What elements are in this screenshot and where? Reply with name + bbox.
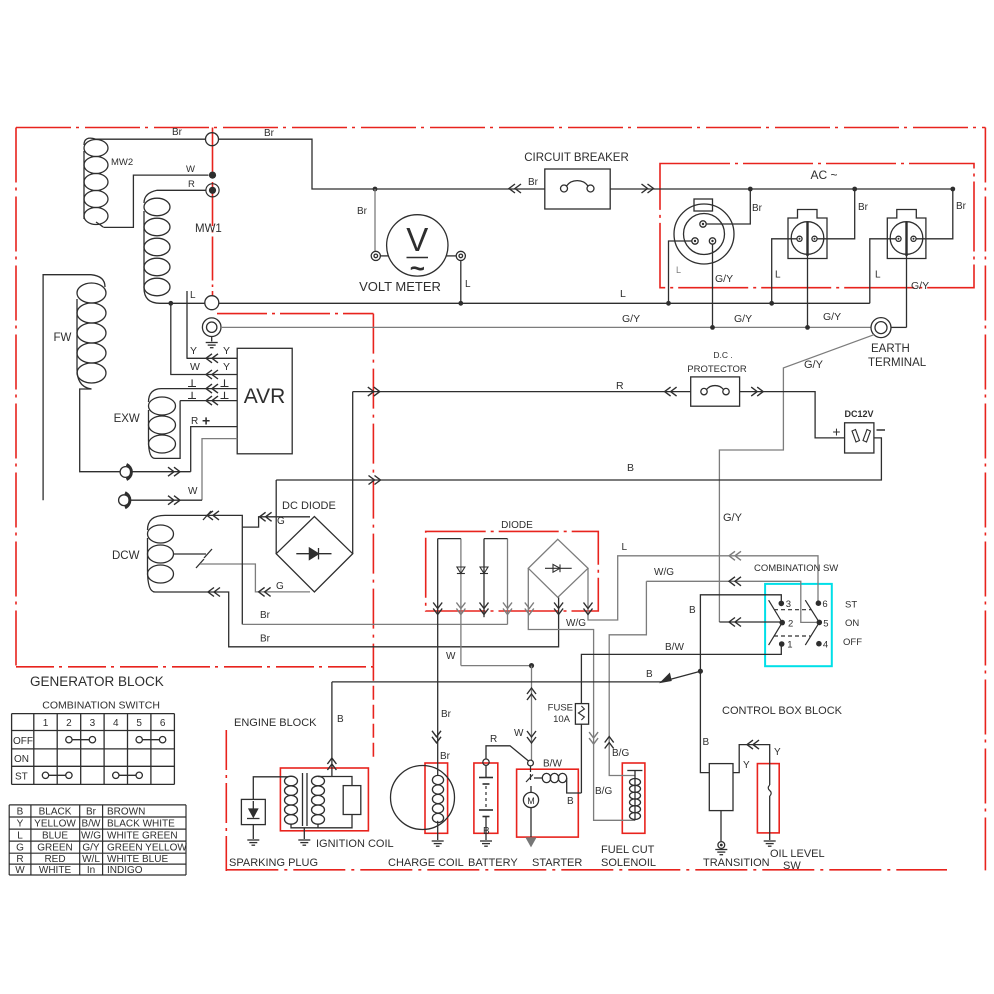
svg-text:DC DIODE: DC DIODE bbox=[282, 500, 336, 512]
svg-text:BATTERY: BATTERY bbox=[468, 857, 518, 869]
svg-text:G: G bbox=[16, 843, 24, 854]
svg-text:CIRCUIT BREAKER: CIRCUIT BREAKER bbox=[524, 152, 629, 164]
svg-text:L: L bbox=[676, 265, 681, 275]
svg-text:R: R bbox=[191, 416, 198, 427]
svg-text:B/W: B/W bbox=[82, 818, 101, 829]
svg-text:1: 1 bbox=[43, 718, 49, 729]
svg-text:ON: ON bbox=[14, 754, 29, 765]
svg-text:4: 4 bbox=[113, 718, 119, 729]
svg-text:GREEN: GREEN bbox=[37, 843, 73, 854]
svg-text:3: 3 bbox=[90, 718, 96, 729]
svg-text:G/Y: G/Y bbox=[82, 843, 100, 854]
svg-text:B: B bbox=[689, 605, 696, 616]
svg-text:G/Y: G/Y bbox=[622, 313, 640, 325]
svg-text:G/Y: G/Y bbox=[715, 273, 733, 285]
svg-text:GENERATOR BLOCK: GENERATOR BLOCK bbox=[30, 674, 164, 689]
svg-text:W: W bbox=[446, 651, 456, 662]
svg-text:Br: Br bbox=[260, 634, 271, 645]
svg-text:WHITE: WHITE bbox=[39, 865, 72, 876]
svg-text:FW: FW bbox=[54, 332, 72, 344]
svg-text:Br: Br bbox=[264, 128, 275, 139]
svg-text:1: 1 bbox=[787, 640, 792, 651]
svg-text:Br: Br bbox=[172, 127, 183, 138]
svg-text:SOLENOIL: SOLENOIL bbox=[601, 857, 656, 869]
svg-text:WHITE GREEN: WHITE GREEN bbox=[107, 831, 178, 842]
svg-text:DIODE: DIODE bbox=[501, 520, 533, 531]
svg-text:Br: Br bbox=[528, 177, 539, 188]
svg-text:Y: Y bbox=[223, 361, 230, 373]
svg-text:3: 3 bbox=[786, 599, 791, 610]
svg-text:G/Y: G/Y bbox=[911, 280, 929, 292]
svg-text:ST: ST bbox=[845, 600, 857, 611]
svg-text:L: L bbox=[620, 288, 626, 300]
svg-text:W: W bbox=[15, 865, 25, 876]
svg-text:BLACK WHITE: BLACK WHITE bbox=[107, 818, 175, 829]
svg-text:B: B bbox=[627, 462, 634, 474]
svg-text:R: R bbox=[616, 380, 624, 392]
svg-text:BROWN: BROWN bbox=[107, 806, 145, 817]
svg-text:B/G: B/G bbox=[612, 748, 629, 759]
svg-text:MW1: MW1 bbox=[195, 223, 222, 235]
svg-text:BLUE: BLUE bbox=[42, 831, 68, 842]
svg-text:Br: Br bbox=[357, 206, 368, 217]
svg-text:B: B bbox=[646, 669, 653, 680]
svg-text:L: L bbox=[465, 279, 471, 290]
svg-text:Br: Br bbox=[752, 203, 763, 214]
svg-text:Br: Br bbox=[956, 201, 967, 212]
svg-text:PROTECTOR: PROTECTOR bbox=[687, 364, 747, 375]
svg-text:2: 2 bbox=[66, 718, 72, 729]
svg-text:6: 6 bbox=[822, 599, 827, 610]
svg-text:L: L bbox=[875, 270, 881, 281]
svg-text:Y: Y bbox=[17, 818, 24, 829]
svg-text:YELLOW: YELLOW bbox=[34, 818, 76, 829]
svg-text:G/Y: G/Y bbox=[723, 512, 743, 524]
svg-text:COMBINATION SWITCH: COMBINATION SWITCH bbox=[42, 700, 160, 712]
svg-text:W: W bbox=[188, 486, 198, 497]
svg-text:W/G: W/G bbox=[566, 618, 586, 629]
svg-text:DC12V: DC12V bbox=[844, 409, 873, 419]
svg-text:STARTER: STARTER bbox=[532, 857, 582, 869]
svg-text:FUEL CUT: FUEL CUT bbox=[601, 844, 655, 856]
svg-text:Y: Y bbox=[190, 345, 197, 357]
svg-text:B: B bbox=[567, 796, 574, 807]
svg-text:W: W bbox=[186, 164, 195, 175]
svg-text:OIL LEVEL: OIL LEVEL bbox=[770, 848, 825, 860]
svg-text:Br: Br bbox=[260, 610, 271, 621]
svg-text:L: L bbox=[622, 542, 628, 553]
svg-text:G/Y: G/Y bbox=[734, 313, 752, 325]
svg-text:R: R bbox=[188, 179, 195, 190]
svg-text:ST: ST bbox=[15, 772, 28, 783]
svg-text:B: B bbox=[483, 826, 490, 837]
svg-text:EXW: EXW bbox=[114, 413, 140, 425]
svg-text:FUSE: FUSE bbox=[548, 703, 573, 714]
svg-text:B/W: B/W bbox=[543, 759, 562, 770]
svg-text:AC ~: AC ~ bbox=[810, 168, 837, 182]
svg-text:G/Y: G/Y bbox=[823, 311, 841, 323]
svg-text:GREEN YELLOW: GREEN YELLOW bbox=[107, 843, 187, 854]
svg-text:Y: Y bbox=[223, 345, 230, 357]
svg-text:B/W: B/W bbox=[665, 642, 684, 653]
svg-text:B: B bbox=[337, 714, 344, 725]
svg-text:CONTROL BOX BLOCK: CONTROL BOX BLOCK bbox=[722, 705, 843, 717]
svg-text:In: In bbox=[87, 865, 95, 876]
svg-text:4: 4 bbox=[823, 640, 828, 651]
svg-text:W/G: W/G bbox=[654, 567, 674, 578]
svg-text:EARTH: EARTH bbox=[871, 343, 910, 355]
svg-text:B: B bbox=[703, 737, 710, 748]
svg-text:TERMINAL: TERMINAL bbox=[868, 357, 927, 369]
svg-text:VOLT METER: VOLT METER bbox=[359, 279, 441, 294]
svg-text:Y: Y bbox=[743, 760, 750, 771]
svg-text:DCW: DCW bbox=[112, 550, 140, 562]
svg-text:CHARGE COIL: CHARGE COIL bbox=[388, 857, 464, 869]
svg-text:2: 2 bbox=[788, 619, 793, 630]
svg-text:Br: Br bbox=[441, 709, 452, 720]
svg-text:L: L bbox=[775, 270, 781, 281]
svg-text:MW2: MW2 bbox=[111, 157, 133, 168]
svg-text:+: + bbox=[202, 413, 210, 429]
svg-text:COMBINATION SW: COMBINATION SW bbox=[754, 563, 838, 574]
svg-text:Br: Br bbox=[440, 751, 451, 762]
svg-text:Br: Br bbox=[86, 806, 97, 817]
svg-text:RED: RED bbox=[44, 854, 65, 865]
svg-text:W/G: W/G bbox=[81, 831, 101, 842]
svg-text:D.C .: D.C . bbox=[713, 350, 732, 360]
svg-text:OFF: OFF bbox=[13, 736, 33, 747]
svg-text:10A: 10A bbox=[553, 714, 571, 725]
svg-text:G: G bbox=[276, 581, 284, 592]
svg-text:SW: SW bbox=[783, 860, 801, 872]
svg-text:W/L: W/L bbox=[82, 854, 100, 865]
svg-text:INDIGO: INDIGO bbox=[107, 865, 143, 876]
svg-text:BLACK: BLACK bbox=[39, 806, 72, 817]
svg-text:6: 6 bbox=[160, 718, 166, 729]
svg-text:R: R bbox=[16, 854, 23, 865]
svg-text:ENGINE BLOCK: ENGINE BLOCK bbox=[234, 717, 317, 729]
svg-text:5: 5 bbox=[136, 718, 142, 729]
svg-text:Y: Y bbox=[774, 747, 781, 758]
svg-text:G/Y: G/Y bbox=[804, 359, 824, 371]
svg-text:Br: Br bbox=[858, 202, 869, 213]
svg-text:B: B bbox=[17, 806, 24, 817]
svg-text:W: W bbox=[514, 728, 524, 739]
svg-text:L: L bbox=[190, 290, 196, 301]
svg-text:B/G: B/G bbox=[595, 786, 612, 797]
svg-text:+: + bbox=[832, 424, 840, 440]
svg-text:AVR: AVR bbox=[244, 385, 286, 408]
svg-text:R: R bbox=[490, 734, 497, 745]
svg-text:ON: ON bbox=[845, 618, 859, 629]
svg-text:5: 5 bbox=[823, 619, 828, 630]
svg-text:M: M bbox=[527, 796, 535, 806]
svg-text:L: L bbox=[17, 831, 23, 842]
svg-text:WHITE BLUE: WHITE BLUE bbox=[107, 854, 168, 865]
svg-text:G: G bbox=[277, 516, 285, 527]
svg-text:W: W bbox=[190, 361, 200, 373]
svg-text:TRANSITION: TRANSITION bbox=[703, 857, 770, 869]
svg-text:IGNITION COIL: IGNITION COIL bbox=[316, 838, 394, 850]
svg-text:OFF: OFF bbox=[843, 637, 862, 648]
svg-text:SPARKING PLUG: SPARKING PLUG bbox=[229, 857, 318, 869]
